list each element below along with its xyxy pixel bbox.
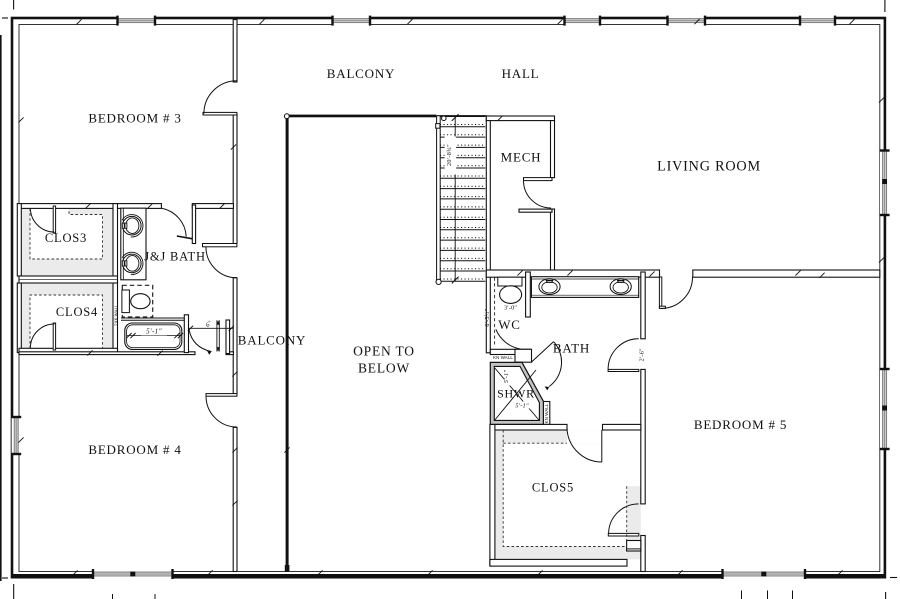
svg-text:BEDROOM # 3: BEDROOM # 3 — [88, 111, 181, 126]
svg-text:2X6 WALL: 2X6 WALL — [114, 304, 119, 326]
svg-text:LIVING ROOM: LIVING ROOM — [657, 159, 761, 175]
svg-text:6′-5½″: 6′-5½″ — [484, 308, 491, 326]
svg-text:5′-1″: 5′-1″ — [146, 328, 162, 336]
svg-text:5′-1″: 5′-1″ — [503, 370, 510, 383]
svg-text:20′-8¾″: 20′-8¾″ — [446, 144, 453, 166]
svg-text:BALCONY: BALCONY — [327, 66, 395, 81]
svg-text:BELOW: BELOW — [358, 361, 410, 376]
svg-text:KN WALL: KN WALL — [544, 403, 549, 423]
svg-text:CLOS3: CLOS3 — [45, 231, 87, 245]
svg-text:SHWR: SHWR — [497, 387, 535, 401]
svg-text:OPEN TO: OPEN TO — [353, 344, 415, 359]
svg-text:5′-1″: 5′-1″ — [515, 402, 529, 409]
svg-text:HALL: HALL — [502, 66, 540, 81]
svg-text:2′-6″: 2′-6″ — [638, 348, 645, 361]
svg-text:3′-0″: 3′-0″ — [504, 305, 517, 312]
svg-text:BEDROOM # 4: BEDROOM # 4 — [88, 442, 181, 457]
svg-text:J&J BATH: J&J BATH — [144, 250, 206, 264]
svg-text:BALCONY: BALCONY — [238, 333, 306, 348]
svg-text:BEDROOM # 5: BEDROOM # 5 — [694, 417, 787, 432]
svg-text:CLOS5: CLOS5 — [532, 481, 574, 495]
svg-text:MECH: MECH — [501, 150, 542, 165]
svg-text:BATH: BATH — [553, 340, 590, 355]
svg-text:KN WALL: KN WALL — [493, 355, 513, 360]
svg-text:WC: WC — [498, 317, 521, 332]
svg-text:CLOS4: CLOS4 — [56, 305, 98, 319]
